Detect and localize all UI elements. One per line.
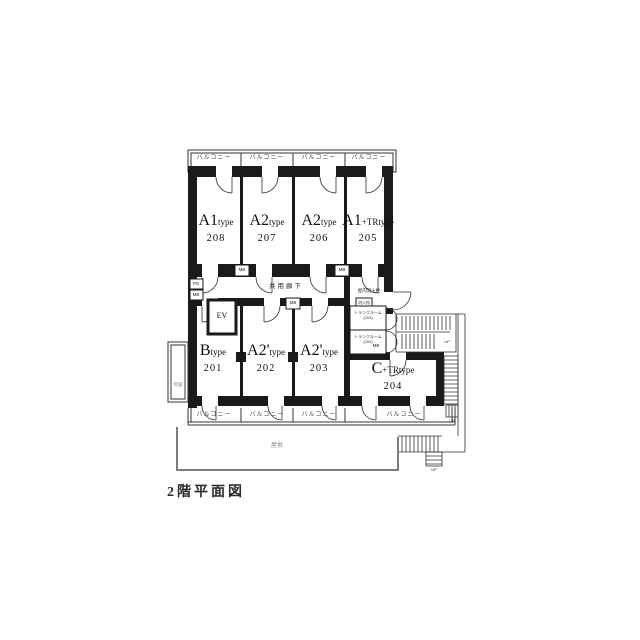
unit-label-207: A2type 207 bbox=[249, 212, 284, 244]
stairs-side bbox=[442, 314, 465, 452]
up-label: UP bbox=[431, 467, 437, 472]
meter-box-label: MB bbox=[339, 267, 346, 272]
balcony-label: バルコニー bbox=[352, 152, 387, 161]
drawing-title: 2階平面図 bbox=[167, 481, 245, 501]
trunk-room-203-label: トランクルーム (203) bbox=[354, 310, 382, 320]
balcony-label: バルコニー bbox=[302, 409, 337, 418]
balcony-label: バルコニー bbox=[250, 409, 285, 418]
floor-plan-drawing bbox=[0, 0, 640, 640]
stairs-lower bbox=[398, 436, 442, 466]
fire-hydrant-label: 屋内消火栓 bbox=[358, 288, 381, 294]
meter-box-label: MB bbox=[290, 300, 297, 305]
fire-hydrant-box-label: 消火栓 bbox=[358, 300, 370, 305]
roof-label: 屋根 bbox=[271, 440, 283, 449]
elevator-label: EV bbox=[217, 311, 228, 320]
up-label: UP bbox=[449, 418, 455, 423]
unit-label-203: A2'type 203 bbox=[300, 342, 338, 374]
roof-outline bbox=[177, 427, 398, 470]
floor-plan-page: A1type 208 A2type 207 A2type 206 A1+TRty… bbox=[0, 0, 640, 640]
trunk-room-204-label: トランクルーム (204) bbox=[354, 334, 382, 344]
unit-label-208: A1type 208 bbox=[198, 212, 233, 244]
unit-label-202: A2'type 202 bbox=[247, 342, 285, 374]
meter-box-label: MB bbox=[239, 267, 246, 272]
storage-label: 物置 bbox=[174, 382, 183, 388]
corridor-label: 共用廊下 bbox=[269, 280, 303, 290]
balcony-label: バルコニー bbox=[250, 152, 285, 161]
balcony-label: バルコニー bbox=[197, 152, 232, 161]
unit-label-206: A2type 206 bbox=[301, 212, 336, 244]
stairs-upper bbox=[396, 314, 456, 352]
pipe-space-label: PS bbox=[193, 281, 199, 286]
up-label: UP bbox=[444, 339, 450, 344]
balcony-label: バルコニー bbox=[302, 152, 337, 161]
balcony-label: バルコニー bbox=[387, 409, 422, 418]
unit-label-204: C+TRtype 204 bbox=[372, 360, 415, 392]
unit-label-205: A1+TRtype 205 bbox=[342, 212, 394, 244]
unit-label-201: Btype 201 bbox=[200, 342, 226, 374]
storage-strip bbox=[168, 342, 188, 402]
balcony-label: バルコニー bbox=[197, 409, 232, 418]
meter-box-label: MB bbox=[193, 292, 200, 297]
